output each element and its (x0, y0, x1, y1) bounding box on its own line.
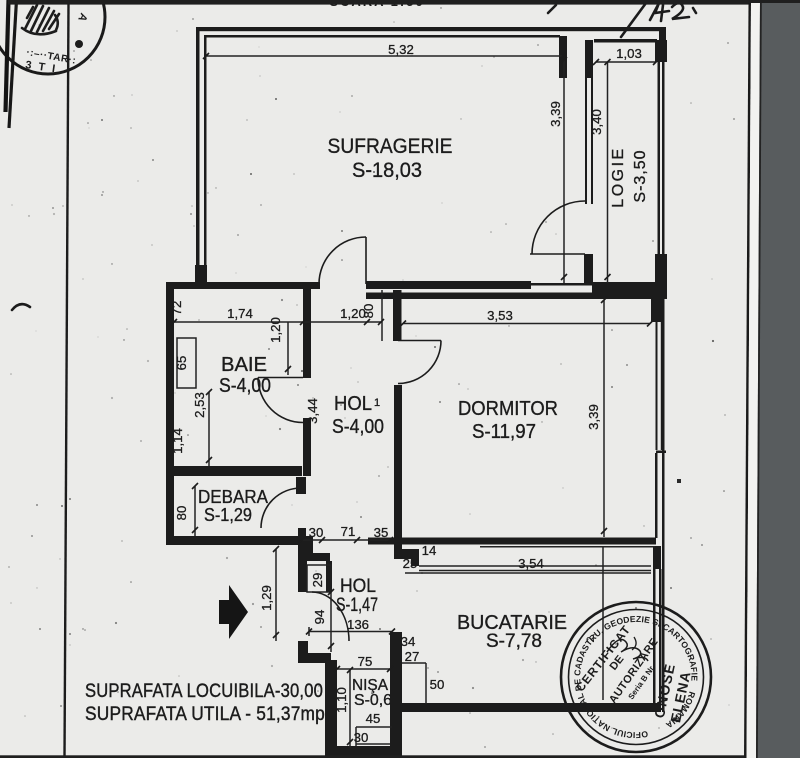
svg-text:65: 65 (174, 356, 189, 371)
svg-text:S-11,97: S-11,97 (472, 421, 536, 443)
svg-text:27: 27 (405, 649, 420, 664)
svg-text:3,53: 3,53 (487, 308, 513, 323)
svg-text:71: 71 (341, 524, 356, 539)
svg-text:SUPRAFATA UTILA - 51,37mp: SUPRAFATA UTILA - 51,37mp (85, 704, 325, 725)
svg-text:25: 25 (403, 556, 418, 571)
svg-text:29: 29 (310, 573, 325, 588)
svg-text:35: 35 (374, 525, 389, 540)
svg-text:S-18,03: S-18,03 (352, 159, 422, 182)
svg-text:SUFRAGERIE: SUFRAGERIE (328, 134, 453, 158)
svg-text:3,44: 3,44 (305, 398, 320, 424)
svg-text:50: 50 (430, 677, 445, 692)
svg-text:14: 14 (422, 543, 437, 558)
svg-text:S-4,00: S-4,00 (332, 416, 384, 438)
svg-text:S-3,50: S-3,50 (632, 149, 649, 202)
svg-text:S-1,47: S-1,47 (336, 595, 378, 616)
svg-text:LOGIE: LOGIE (610, 146, 627, 207)
svg-text:1,74: 1,74 (227, 306, 253, 321)
svg-text:DEBARA: DEBARA (198, 487, 268, 507)
svg-text:HOL: HOL (340, 576, 376, 597)
svg-text:2,53: 2,53 (192, 392, 207, 418)
svg-text:3,54: 3,54 (518, 556, 544, 571)
svg-text:72: 72 (169, 301, 184, 316)
svg-text:1,29: 1,29 (259, 585, 274, 611)
svg-text:75: 75 (358, 654, 373, 669)
svg-text:DORMITOR: DORMITOR (458, 397, 558, 420)
svg-text:30: 30 (354, 730, 369, 745)
svg-text:S-4,00: S-4,00 (219, 375, 271, 397)
svg-text:30: 30 (309, 525, 324, 540)
svg-text:1: 1 (374, 397, 380, 409)
svg-text:80: 80 (174, 506, 189, 521)
svg-text:3,40: 3,40 (589, 109, 604, 135)
svg-text:94: 94 (312, 610, 327, 625)
svg-text:BAIE: BAIE (221, 354, 267, 376)
svg-text:136: 136 (347, 617, 369, 632)
svg-text:S-1,29: S-1,29 (204, 505, 252, 525)
svg-text:S-7,78: S-7,78 (486, 630, 542, 652)
svg-text:1,14: 1,14 (170, 428, 185, 454)
svg-text:34: 34 (401, 634, 416, 649)
svg-text:HOL: HOL (334, 393, 372, 415)
svg-text:1,10: 1,10 (334, 687, 349, 713)
svg-text:1,20: 1,20 (268, 317, 283, 343)
svg-text:1,03: 1,03 (616, 46, 642, 61)
svg-text:45: 45 (366, 711, 381, 726)
svg-text:S-0,6: S-0,6 (354, 692, 392, 709)
svg-text:3,39: 3,39 (548, 101, 563, 127)
svg-text:80: 80 (361, 304, 376, 319)
svg-text:3,39: 3,39 (586, 404, 601, 430)
svg-text:5,32: 5,32 (388, 42, 414, 57)
svg-text:SUPRAFATA LOCUIBILA-30,00: SUPRAFATA LOCUIBILA-30,00 (85, 681, 323, 702)
